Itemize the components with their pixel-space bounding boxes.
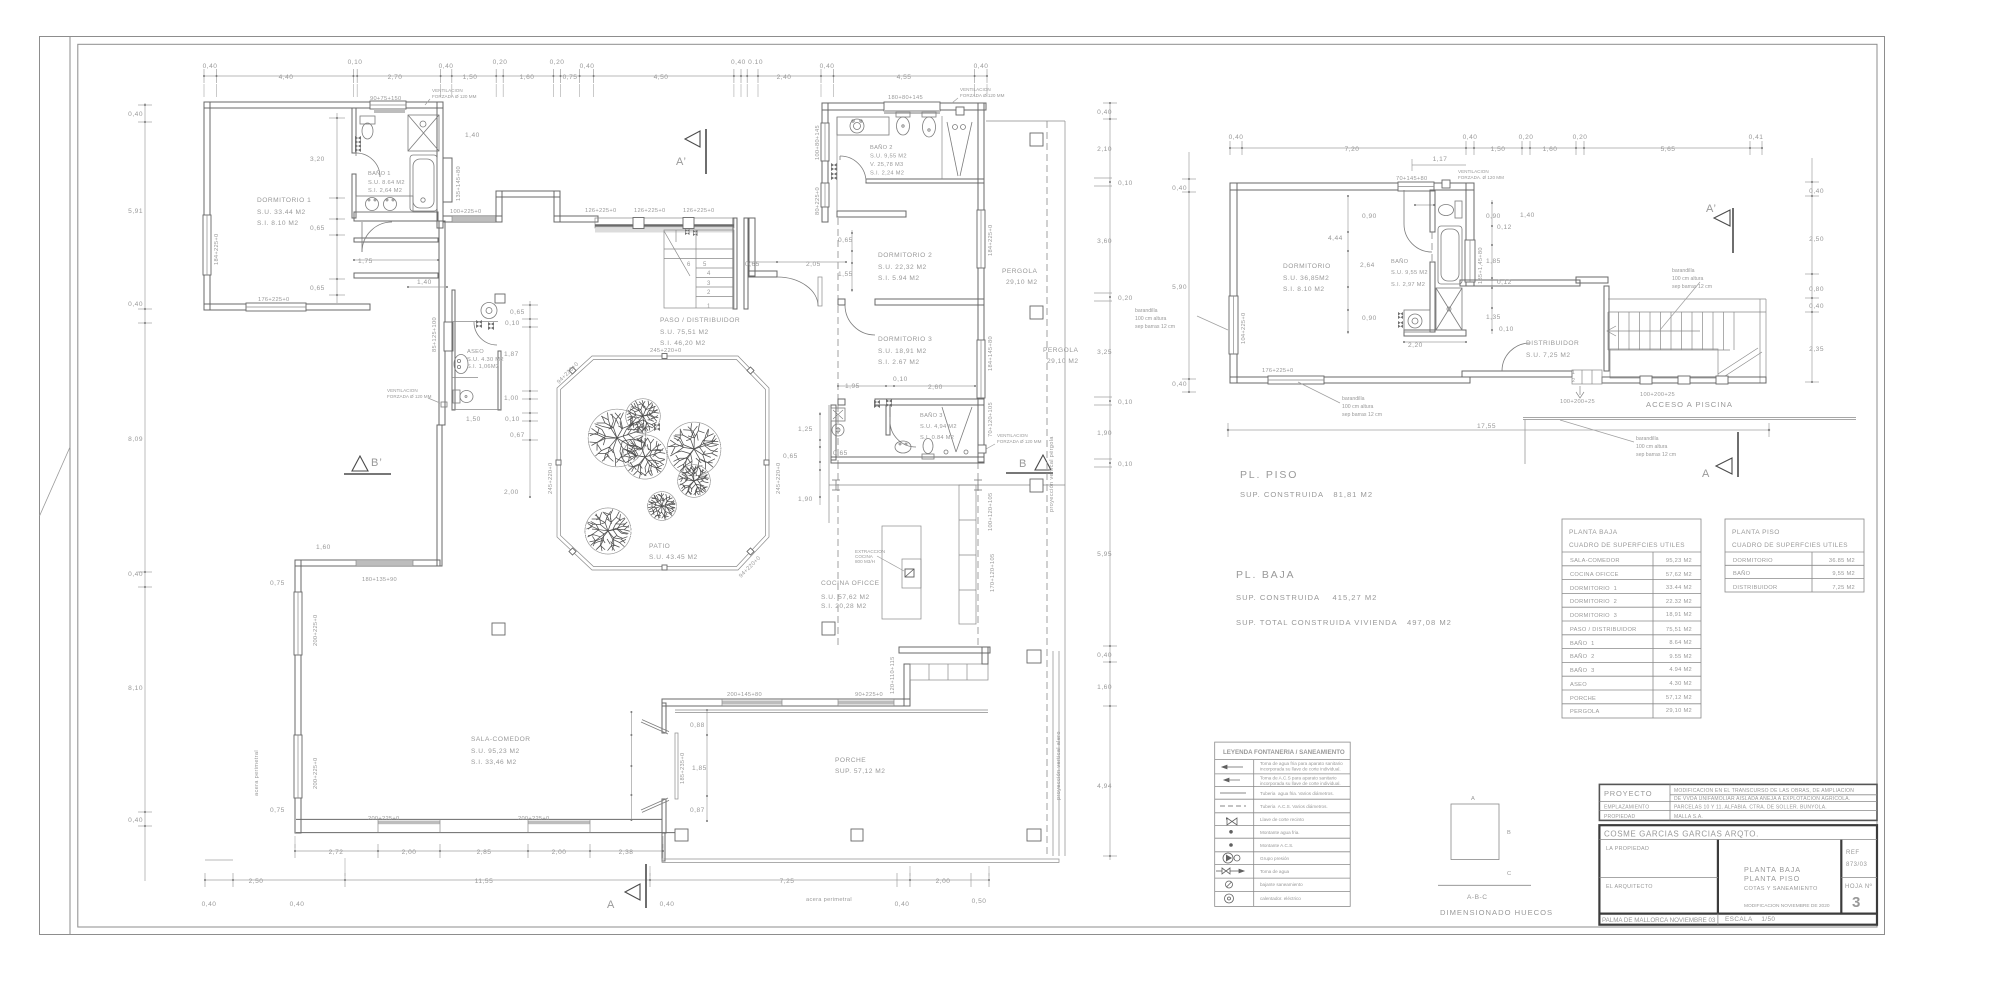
svg-text:proyección vertical pérgola: proyección vertical pérgola bbox=[1049, 436, 1055, 512]
svg-text:0,40 0.10: 0,40 0.10 bbox=[731, 59, 763, 66]
svg-text:0,40: 0,40 bbox=[1809, 303, 1824, 310]
svg-text:5,90: 5,90 bbox=[1172, 284, 1187, 291]
svg-text:2,60: 2,60 bbox=[928, 384, 943, 391]
svg-text:95,23 M2: 95,23 M2 bbox=[1666, 558, 1692, 564]
svg-text:S.I. 2,64 M2: S.I. 2,64 M2 bbox=[368, 188, 402, 194]
svg-text:PL. BAJA: PL. BAJA bbox=[1236, 569, 1295, 581]
svg-text:Tuberia A.C.S. Varios diámetr: Tuberia A.C.S. Varios diámetros. bbox=[1260, 804, 1328, 809]
svg-text:Montante agua fria.: Montante agua fria. bbox=[1260, 830, 1300, 835]
svg-text:0,40: 0,40 bbox=[820, 63, 835, 70]
svg-text:245+220+0: 245+220+0 bbox=[776, 463, 782, 495]
svg-text:S.I. 2,97 M2: S.I. 2,97 M2 bbox=[1391, 282, 1425, 288]
svg-text:0,90: 0,90 bbox=[1362, 315, 1377, 322]
svg-text:LA PROPIEDAD: LA PROPIEDAD bbox=[1606, 846, 1649, 852]
svg-text:7,25 M2: 7,25 M2 bbox=[1832, 585, 1855, 591]
svg-text:PROPIEDAD: PROPIEDAD bbox=[1604, 814, 1635, 820]
svg-text:S.U. 22,32 M2: S.U. 22,32 M2 bbox=[878, 264, 927, 271]
svg-text:184+225+0: 184+225+0 bbox=[988, 225, 994, 257]
svg-text:sep barras 12 cm: sep barras 12 cm bbox=[1342, 412, 1382, 418]
svg-text:0,41: 0,41 bbox=[1749, 134, 1764, 141]
svg-text:100 cm altura: 100 cm altura bbox=[1135, 316, 1167, 322]
svg-text:2,00: 2,00 bbox=[936, 878, 951, 885]
svg-text:sep barras 12 cm: sep barras 12 cm bbox=[1135, 324, 1175, 330]
svg-text:100 cm altura: 100 cm altura bbox=[1342, 404, 1374, 410]
svg-text:0,65: 0,65 bbox=[310, 225, 325, 232]
svg-text:SUP. CONSTRUIDA 81,81 M2: SUP. CONSTRUIDA 81,81 M2 bbox=[1240, 490, 1373, 499]
svg-text:S.U. 4.30 M2: S.U. 4.30 M2 bbox=[467, 357, 504, 363]
svg-text:120+110+115: 120+110+115 bbox=[890, 656, 896, 694]
svg-text:0,40: 0,40 bbox=[660, 901, 675, 908]
svg-text:0,65: 0,65 bbox=[510, 309, 525, 316]
svg-text:S.I. 2.67 M2: S.I. 2.67 M2 bbox=[878, 359, 920, 366]
svg-text:1,40: 1,40 bbox=[417, 279, 432, 286]
svg-text:BAÑO 2: BAÑO 2 bbox=[1570, 653, 1595, 660]
svg-text:3,25: 3,25 bbox=[1097, 349, 1112, 356]
svg-text:incorporada su llave de corte: incorporada su llave de corte individual… bbox=[1260, 781, 1341, 786]
svg-text:PLANTA BAJA: PLANTA BAJA bbox=[1569, 529, 1618, 536]
svg-text:2,64: 2,64 bbox=[1360, 262, 1375, 269]
svg-text:0,75: 0,75 bbox=[563, 74, 578, 81]
svg-text:PASO / DISTRIBUIDOR: PASO / DISTRIBUIDOR bbox=[1570, 627, 1637, 633]
svg-text:S.I. 20,28 M2: S.I. 20,28 M2 bbox=[821, 603, 867, 610]
svg-text:A: A bbox=[607, 899, 615, 911]
svg-text:0,10: 0,10 bbox=[1118, 180, 1133, 187]
svg-text:0,90: 0,90 bbox=[1362, 213, 1377, 220]
svg-text:3: 3 bbox=[1852, 894, 1860, 911]
svg-text:0,40: 0,40 bbox=[895, 901, 910, 908]
svg-text:100+200+25: 100+200+25 bbox=[1640, 392, 1675, 398]
svg-text:0,10: 0,10 bbox=[505, 320, 520, 327]
svg-text:ASEO: ASEO bbox=[467, 349, 484, 355]
svg-text:PLANTA PISO: PLANTA PISO bbox=[1744, 874, 1800, 883]
svg-text:A: A bbox=[1471, 796, 1475, 802]
svg-text:DE VVDA UNIFAMOLIAR AISLADA AN: DE VVDA UNIFAMOLIAR AISLADA ANEJA A EXPL… bbox=[1674, 796, 1850, 802]
svg-text:BAÑO 1: BAÑO 1 bbox=[1570, 640, 1595, 647]
svg-text:incorporada su llave de corte: incorporada su llave de corte individual… bbox=[1260, 767, 1341, 772]
svg-text:BAÑO: BAÑO bbox=[1733, 570, 1751, 577]
svg-text:0,40: 0,40 bbox=[1172, 185, 1187, 192]
svg-text:S.U. 43.45 M2: S.U. 43.45 M2 bbox=[649, 554, 698, 561]
svg-text:0,20: 0,20 bbox=[550, 59, 565, 66]
svg-text:ESCALA 1/50: ESCALA 1/50 bbox=[1725, 916, 1775, 923]
svg-text:5,65: 5,65 bbox=[1661, 146, 1676, 153]
svg-text:HOJA Nº: HOJA Nº bbox=[1845, 883, 1873, 890]
svg-text:100+120+105: 100+120+105 bbox=[988, 493, 994, 531]
svg-text:DORMITORIO: DORMITORIO bbox=[1283, 263, 1331, 270]
svg-text:S.U. 36,85M2: S.U. 36,85M2 bbox=[1283, 275, 1329, 282]
svg-text:126+225+0: 126+225+0 bbox=[585, 208, 617, 214]
svg-text:4,94: 4,94 bbox=[1097, 783, 1112, 790]
svg-text:VENTILACION: VENTILACION bbox=[432, 88, 463, 93]
svg-text:1,40: 1,40 bbox=[1520, 212, 1535, 219]
svg-text:2,00: 2,00 bbox=[402, 849, 417, 856]
svg-text:BAÑO 3: BAÑO 3 bbox=[1570, 667, 1595, 674]
svg-text:SUP. TOTAL CONSTRUIDA VIVIENDA: SUP. TOTAL CONSTRUIDA VIVIENDA 497,08 M2 bbox=[1236, 618, 1452, 627]
svg-text:calentador. eléctrico: calentador. eléctrico bbox=[1260, 896, 1301, 901]
svg-text:FORZADA Ø 120 MM: FORZADA Ø 120 MM bbox=[960, 93, 1005, 98]
svg-text:S.I. 5.94 M2: S.I. 5.94 M2 bbox=[878, 275, 920, 282]
svg-text:DISTRIBUIDOR: DISTRIBUIDOR bbox=[1526, 340, 1579, 347]
svg-text:4,55: 4,55 bbox=[897, 74, 912, 81]
svg-text:2,20: 2,20 bbox=[1408, 342, 1423, 349]
svg-text:17,55: 17,55 bbox=[1477, 423, 1496, 430]
svg-text:S.U. 57,62 M2: S.U. 57,62 M2 bbox=[821, 594, 870, 601]
svg-text:acera perimetral: acera perimetral bbox=[254, 750, 260, 796]
svg-text:FORZADA Ø 120 MM: FORZADA Ø 120 MM bbox=[387, 394, 432, 399]
svg-text:0,12: 0,12 bbox=[1497, 279, 1512, 286]
svg-text:S.U. 75,51 M2: S.U. 75,51 M2 bbox=[660, 329, 709, 336]
svg-text:2: 2 bbox=[1572, 378, 1575, 384]
svg-text:5,91: 5,91 bbox=[128, 208, 143, 215]
svg-text:1,40: 1,40 bbox=[465, 132, 480, 139]
svg-text:DISTRIBUIDOR: DISTRIBUIDOR bbox=[1733, 585, 1777, 591]
svg-text:A-B-C: A-B-C bbox=[1467, 894, 1487, 901]
svg-text:Montante A.C.S.: Montante A.C.S. bbox=[1260, 843, 1293, 848]
svg-text:0,75: 0,75 bbox=[270, 807, 285, 814]
svg-text:33.44 M2: 33.44 M2 bbox=[1666, 585, 1692, 591]
svg-text:4,44: 4,44 bbox=[1328, 235, 1343, 242]
svg-text:11,55: 11,55 bbox=[475, 878, 494, 885]
svg-text:Toma de agua fria para aparato: Toma de agua fria para aparato sanitario bbox=[1260, 761, 1343, 766]
svg-text:100+80+145: 100+80+145 bbox=[815, 125, 821, 160]
svg-text:COCINA OFICCE: COCINA OFICCE bbox=[1570, 572, 1619, 578]
svg-text:1,17: 1,17 bbox=[1433, 156, 1448, 163]
svg-text:200+225+0: 200+225+0 bbox=[518, 816, 550, 822]
svg-text:1,60: 1,60 bbox=[316, 544, 331, 551]
svg-text:180+135+90: 180+135+90 bbox=[362, 577, 397, 583]
svg-text:B: B bbox=[1019, 458, 1027, 470]
svg-text:barandilla: barandilla bbox=[1342, 396, 1365, 402]
svg-text:135+145+80: 135+145+80 bbox=[456, 166, 462, 201]
svg-text:VENTILACION: VENTILACION bbox=[997, 433, 1028, 438]
svg-text:Toma de agua: Toma de agua bbox=[1260, 869, 1290, 874]
svg-text:0,90: 0,90 bbox=[1486, 213, 1501, 220]
svg-text:DORMITORIO 3: DORMITORIO 3 bbox=[878, 336, 932, 343]
svg-text:7,25: 7,25 bbox=[780, 878, 795, 885]
svg-text:70+145+80: 70+145+80 bbox=[1396, 176, 1428, 182]
svg-text:S.U. 7,25 M2: S.U. 7,25 M2 bbox=[1526, 352, 1570, 359]
svg-text:0,50: 0,50 bbox=[972, 898, 987, 905]
svg-text:S.I. 8.10 M2: S.I. 8.10 M2 bbox=[257, 220, 299, 227]
svg-text:184+225+0: 184+225+0 bbox=[214, 234, 220, 266]
svg-text:1,60: 1,60 bbox=[1097, 684, 1112, 691]
svg-text:0,40: 0,40 bbox=[1809, 188, 1824, 195]
svg-text:VENTILACION: VENTILACION bbox=[960, 87, 991, 92]
svg-text:acera perimetral: acera perimetral bbox=[806, 897, 852, 903]
svg-text:COCINA OFICCE: COCINA OFICCE bbox=[821, 580, 880, 587]
svg-text:0,10: 0,10 bbox=[1118, 461, 1133, 468]
svg-text:0,40: 0,40 bbox=[128, 111, 143, 118]
svg-text:0,40: 0,40 bbox=[439, 63, 454, 70]
svg-text:1,60: 1,60 bbox=[520, 74, 535, 81]
svg-text:0,40: 0,40 bbox=[974, 63, 989, 70]
svg-text:PLANTA PISO: PLANTA PISO bbox=[1732, 529, 1780, 536]
svg-text:PORCHE: PORCHE bbox=[835, 757, 866, 764]
svg-text:1,00: 1,00 bbox=[504, 395, 519, 402]
svg-text:1,25: 1,25 bbox=[798, 426, 813, 433]
svg-text:0,40: 0,40 bbox=[1172, 381, 1187, 388]
svg-text:MALLA S.A.: MALLA S.A. bbox=[1674, 814, 1703, 820]
svg-text:DORMITORIO 3: DORMITORIO 3 bbox=[1570, 613, 1617, 619]
svg-text:29,10 M2: 29,10 M2 bbox=[1006, 279, 1038, 286]
svg-text:8,10: 8,10 bbox=[128, 685, 143, 692]
svg-text:B’: B’ bbox=[371, 457, 383, 469]
svg-text:180+80+145: 180+80+145 bbox=[888, 95, 923, 101]
svg-text:126+225+0: 126+225+0 bbox=[683, 208, 715, 214]
svg-text:0,40: 0,40 bbox=[1097, 652, 1112, 659]
svg-text:EL ARQUITECTO: EL ARQUITECTO bbox=[1606, 884, 1653, 890]
svg-text:0,80: 0,80 bbox=[1809, 286, 1824, 293]
svg-text:2,70: 2,70 bbox=[388, 74, 403, 81]
svg-text:0,65: 0,65 bbox=[310, 285, 325, 292]
svg-text:1,90: 1,90 bbox=[798, 496, 813, 503]
svg-text:57,12 M2: 57,12 M2 bbox=[1666, 695, 1692, 701]
svg-text:A: A bbox=[1702, 468, 1710, 480]
svg-text:176+225+0: 176+225+0 bbox=[1262, 368, 1294, 374]
svg-text:1,85: 1,85 bbox=[692, 765, 707, 772]
svg-text:PROYECTO: PROYECTO bbox=[1604, 789, 1652, 798]
svg-text:S.I. 8.10 M2: S.I. 8.10 M2 bbox=[1283, 286, 1325, 293]
svg-text:VENTILACION: VENTILACION bbox=[1458, 169, 1489, 174]
svg-text:0,40: 0,40 bbox=[128, 817, 143, 824]
svg-text:MODIFICACION NOVIEMBRE DE 2020: MODIFICACION NOVIEMBRE DE 2020 bbox=[1744, 903, 1830, 909]
svg-text:185+235+0: 185+235+0 bbox=[680, 753, 686, 785]
svg-text:0,65: 0,65 bbox=[833, 450, 848, 457]
svg-text:PALMA DE MALLORCA NOVIEMBRE 03: PALMA DE MALLORCA NOVIEMBRE 03 bbox=[1602, 917, 1716, 924]
svg-text:S.U. 9,55 M2: S.U. 9,55 M2 bbox=[870, 154, 907, 160]
svg-text:1,87: 1,87 bbox=[504, 351, 519, 358]
svg-text:0,88: 0,88 bbox=[690, 722, 705, 729]
svg-text:A’: A’ bbox=[676, 156, 687, 168]
svg-text:PASO / DISTRIBUIDOR: PASO / DISTRIBUIDOR bbox=[660, 317, 740, 324]
svg-text:57,62 M2: 57,62 M2 bbox=[1666, 572, 1692, 578]
svg-text:bajante saneamiento: bajante saneamiento bbox=[1260, 882, 1303, 887]
svg-text:100+225+0: 100+225+0 bbox=[450, 209, 482, 215]
svg-text:PATIO: PATIO bbox=[649, 543, 670, 550]
svg-text:2,38: 2,38 bbox=[619, 849, 634, 856]
svg-text:0,40: 0,40 bbox=[1229, 134, 1244, 141]
svg-text:BAÑO 1: BAÑO 1 bbox=[368, 170, 391, 177]
svg-text:0,65: 0,65 bbox=[838, 237, 853, 244]
svg-text:S.U. 8.64 M2: S.U. 8.64 M2 bbox=[368, 180, 405, 186]
svg-text:0,40: 0,40 bbox=[128, 571, 143, 578]
svg-text:0,20: 0,20 bbox=[1573, 134, 1588, 141]
svg-text:0,75: 0,75 bbox=[270, 580, 285, 587]
svg-text:90+225+0: 90+225+0 bbox=[855, 692, 883, 698]
svg-text:1,95: 1,95 bbox=[845, 383, 860, 390]
svg-text:0,40: 0,40 bbox=[580, 63, 595, 70]
svg-text:2,50: 2,50 bbox=[249, 878, 264, 885]
svg-text:PLANTA BAJA: PLANTA BAJA bbox=[1744, 865, 1801, 874]
svg-text:170+120+105: 170+120+105 bbox=[990, 554, 996, 592]
svg-text:FORZADA Ø 120 MM: FORZADA Ø 120 MM bbox=[997, 439, 1042, 444]
svg-text:9,55 M2: 9,55 M2 bbox=[1832, 571, 1855, 577]
svg-text:184+145+80: 184+145+80 bbox=[988, 336, 994, 371]
svg-text:barandilla: barandilla bbox=[1672, 268, 1695, 274]
svg-text:S.I. 1,06M2: S.I. 1,06M2 bbox=[467, 364, 499, 370]
svg-text:A’: A’ bbox=[1706, 203, 1717, 215]
svg-text:1,85: 1,85 bbox=[1486, 258, 1501, 265]
svg-text:245+220+0: 245+220+0 bbox=[650, 348, 682, 354]
svg-text:2,00: 2,00 bbox=[552, 849, 567, 856]
svg-text:8.64 M2: 8.64 M2 bbox=[1669, 640, 1692, 646]
svg-text:barandilla: barandilla bbox=[1135, 308, 1158, 314]
svg-text:sep barras 12 cm: sep barras 12 cm bbox=[1636, 452, 1676, 458]
svg-text:FORZADA Ø 120 MM: FORZADA Ø 120 MM bbox=[432, 94, 477, 99]
svg-text:COSME GARCIAS GARCIAS ARQTO.: COSME GARCIAS GARCIAS ARQTO. bbox=[1604, 830, 1759, 839]
svg-text:29,10 M2: 29,10 M2 bbox=[1666, 708, 1692, 714]
svg-text:REF: REF bbox=[1846, 850, 1860, 856]
svg-text:245+220+0: 245+220+0 bbox=[548, 463, 554, 495]
svg-text:1,60: 1,60 bbox=[1543, 146, 1558, 153]
svg-text:1,55: 1,55 bbox=[838, 271, 853, 278]
svg-text:ASEO: ASEO bbox=[1570, 682, 1587, 688]
svg-text:BAÑO 3: BAÑO 3 bbox=[920, 412, 943, 419]
svg-text:75,51 M2: 75,51 M2 bbox=[1666, 627, 1692, 633]
svg-text:DORMITORIO 1: DORMITORIO 1 bbox=[1570, 586, 1617, 592]
svg-text:800 M3/H: 800 M3/H bbox=[855, 559, 875, 564]
svg-text:126+225+0: 126+225+0 bbox=[634, 208, 666, 214]
svg-text:BAÑO: BAÑO bbox=[1391, 258, 1409, 265]
svg-text:proyección vertical alero: proyección vertical alero bbox=[1056, 731, 1062, 800]
svg-text:S.I. 2,24 M2: S.I. 2,24 M2 bbox=[870, 171, 904, 177]
svg-text:8,09: 8,09 bbox=[128, 436, 143, 443]
svg-text:3,20: 3,20 bbox=[310, 156, 325, 163]
svg-text:2,40: 2,40 bbox=[777, 74, 792, 81]
svg-text:VENTILACION: VENTILACION bbox=[387, 388, 418, 393]
svg-text:FORZADA. Ø 120 MM: FORZADA. Ø 120 MM bbox=[1458, 175, 1504, 180]
svg-text:1,50: 1,50 bbox=[466, 416, 481, 423]
svg-text:S.U. 33.44 M2: S.U. 33.44 M2 bbox=[257, 209, 306, 216]
svg-text:2,35: 2,35 bbox=[1809, 346, 1824, 353]
svg-text:CUADRO DE SUPERFCIES UTILES: CUADRO DE SUPERFCIES UTILES bbox=[1569, 542, 1685, 549]
svg-text:104+225+0: 104+225+0 bbox=[1241, 313, 1247, 345]
svg-text:1,50: 1,50 bbox=[1491, 146, 1506, 153]
svg-text:0,40: 0,40 bbox=[1463, 134, 1478, 141]
svg-text:18,91 M2: 18,91 M2 bbox=[1666, 612, 1692, 618]
svg-text:1,35: 1,35 bbox=[1486, 314, 1501, 321]
svg-text:V. 25,78 M3: V. 25,78 M3 bbox=[870, 162, 903, 168]
svg-text:0,10: 0,10 bbox=[893, 376, 908, 383]
svg-text:1,50: 1,50 bbox=[463, 74, 478, 81]
svg-text:4,40: 4,40 bbox=[279, 74, 294, 81]
svg-text:200+225+0: 200+225+0 bbox=[368, 816, 400, 822]
svg-text:100+200+25: 100+200+25 bbox=[1560, 399, 1595, 405]
svg-text:135+1,45+80: 135+1,45+80 bbox=[1478, 247, 1484, 284]
svg-text:0,40: 0,40 bbox=[128, 301, 143, 308]
svg-text:S.I. 0.84 M2: S.I. 0.84 M2 bbox=[920, 435, 954, 441]
svg-text:2,00: 2,00 bbox=[504, 489, 519, 496]
svg-text:85+125+100: 85+125+100 bbox=[432, 317, 438, 352]
svg-text:0,67: 0,67 bbox=[510, 432, 525, 439]
svg-text:22.32 M2: 22.32 M2 bbox=[1666, 599, 1692, 605]
svg-text:EMPLAZAMIENTO: EMPLAZAMIENTO bbox=[1604, 805, 1649, 811]
svg-text:0,40: 0,40 bbox=[290, 901, 305, 908]
svg-text:0,87: 0,87 bbox=[690, 807, 705, 814]
svg-text:COTAS Y SANEAMIENTO: COTAS Y SANEAMIENTO bbox=[1744, 886, 1818, 892]
svg-text:S.U. 9,55 M2: S.U. 9,55 M2 bbox=[1391, 270, 1428, 276]
svg-text:C: C bbox=[1507, 871, 1511, 877]
svg-text:200+225+0: 200+225+0 bbox=[313, 615, 319, 647]
svg-text:0,40: 0,40 bbox=[203, 63, 218, 70]
svg-text:4.30 M2: 4.30 M2 bbox=[1669, 681, 1692, 687]
svg-text:0,10: 0,10 bbox=[1499, 326, 1514, 333]
svg-text:9.55 M2: 9.55 M2 bbox=[1669, 654, 1692, 660]
svg-text:Llave de corte recinto: Llave de corte recinto bbox=[1260, 817, 1304, 822]
svg-text:2,85: 2,85 bbox=[477, 849, 492, 856]
svg-text:4,50: 4,50 bbox=[654, 74, 669, 81]
svg-text:Tuberia agua fria. Varios diá: Tuberia agua fria. Varios diámetros. bbox=[1260, 791, 1334, 796]
svg-text:PERGOLA: PERGOLA bbox=[1043, 347, 1078, 354]
svg-text:S.I. 46,20 M2: S.I. 46,20 M2 bbox=[660, 340, 706, 347]
svg-text:200+145+80: 200+145+80 bbox=[727, 692, 762, 698]
svg-text:70+120+105: 70+120+105 bbox=[988, 402, 994, 437]
svg-text:Toma de A.C.S para aparato san: Toma de A.C.S para aparato sanitario bbox=[1260, 776, 1337, 781]
svg-text:S.U. 4,94 M2: S.U. 4,94 M2 bbox=[920, 424, 957, 430]
svg-text:100 cm altura: 100 cm altura bbox=[1636, 444, 1668, 450]
svg-text:29,10 M2: 29,10 M2 bbox=[1047, 358, 1079, 365]
svg-text:2,72: 2,72 bbox=[329, 849, 344, 856]
svg-text:0,10: 0,10 bbox=[348, 59, 363, 66]
svg-text:PERGOLA: PERGOLA bbox=[1002, 268, 1037, 275]
svg-text:0,12: 0,12 bbox=[1497, 224, 1512, 231]
svg-text:S.U. 18,91 M2: S.U. 18,91 M2 bbox=[878, 348, 927, 355]
svg-text:1,90: 1,90 bbox=[1097, 430, 1112, 437]
svg-text:PARCELAS 10 Y 11. ALFABIA. CTR: PARCELAS 10 Y 11. ALFABIA. CTRA. DE SOLL… bbox=[1674, 805, 1827, 811]
svg-text:SALA-COMEDOR: SALA-COMEDOR bbox=[1570, 558, 1620, 564]
svg-text:DIMENSIONADO HUECOS: DIMENSIONADO HUECOS bbox=[1440, 908, 1553, 917]
svg-text:barandilla: barandilla bbox=[1636, 436, 1659, 442]
svg-text:90+75+150: 90+75+150 bbox=[370, 96, 402, 102]
svg-text:4.94 M2: 4.94 M2 bbox=[1669, 667, 1692, 673]
svg-text:LEYENDA FONTANERIA / SANEAMIEN: LEYENDA FONTANERIA / SANEAMIENTO bbox=[1223, 749, 1345, 756]
svg-text:B: B bbox=[1507, 830, 1511, 836]
svg-text:176+225+0: 176+225+0 bbox=[258, 297, 290, 303]
svg-text:80+225+0: 80+225+0 bbox=[815, 187, 821, 215]
svg-text:ACCESO A PISCINA: ACCESO A PISCINA bbox=[1646, 400, 1733, 409]
svg-text:1: 1 bbox=[1572, 370, 1575, 376]
svg-text:DORMITORIO 1: DORMITORIO 1 bbox=[257, 197, 311, 204]
svg-text:0,40: 0,40 bbox=[202, 901, 217, 908]
svg-text:873/03: 873/03 bbox=[1846, 862, 1868, 868]
svg-text:PL. PISO: PL. PISO bbox=[1240, 469, 1298, 481]
svg-text:0,20: 0,20 bbox=[1519, 134, 1534, 141]
svg-text:2,10: 2,10 bbox=[1097, 146, 1112, 153]
svg-text:0,20: 0,20 bbox=[493, 59, 508, 66]
svg-text:5,95: 5,95 bbox=[1097, 551, 1112, 558]
svg-text:DORMITORIO 2: DORMITORIO 2 bbox=[1570, 599, 1617, 605]
svg-text:3,60: 3,60 bbox=[1097, 238, 1112, 245]
svg-text:sep barras 12 cm: sep barras 12 cm bbox=[1672, 284, 1712, 290]
svg-text:S.I. 33,46 M2: S.I. 33,46 M2 bbox=[471, 759, 517, 766]
svg-text:2,50: 2,50 bbox=[1809, 236, 1824, 243]
svg-text:36.85 M2: 36.85 M2 bbox=[1829, 558, 1855, 564]
svg-text:0,65: 0,65 bbox=[783, 453, 798, 460]
svg-text:BAÑO 2: BAÑO 2 bbox=[870, 144, 893, 151]
svg-text:0,40: 0,40 bbox=[1097, 109, 1112, 116]
svg-text:MODIFICACION EN EL TRANSCURSO: MODIFICACION EN EL TRANSCURSO DE LAS OBR… bbox=[1674, 788, 1854, 794]
svg-text:CUADRO DE SUPERFCIES UTILES: CUADRO DE SUPERFCIES UTILES bbox=[1732, 542, 1848, 549]
svg-text:DORMITORIO 2: DORMITORIO 2 bbox=[878, 252, 932, 259]
svg-text:SUP. 57,12 M2: SUP. 57,12 M2 bbox=[835, 768, 885, 775]
svg-text:Grupo presión: Grupo presión bbox=[1260, 856, 1290, 861]
svg-text:0,10: 0,10 bbox=[1118, 399, 1133, 406]
svg-text:SALA-COMEDOR: SALA-COMEDOR bbox=[471, 736, 531, 743]
svg-text:PORCHE: PORCHE bbox=[1570, 696, 1596, 702]
svg-text:0,20: 0,20 bbox=[1118, 295, 1133, 302]
svg-text:200+225+0: 200+225+0 bbox=[313, 758, 319, 790]
svg-text:0,10: 0,10 bbox=[505, 416, 520, 423]
